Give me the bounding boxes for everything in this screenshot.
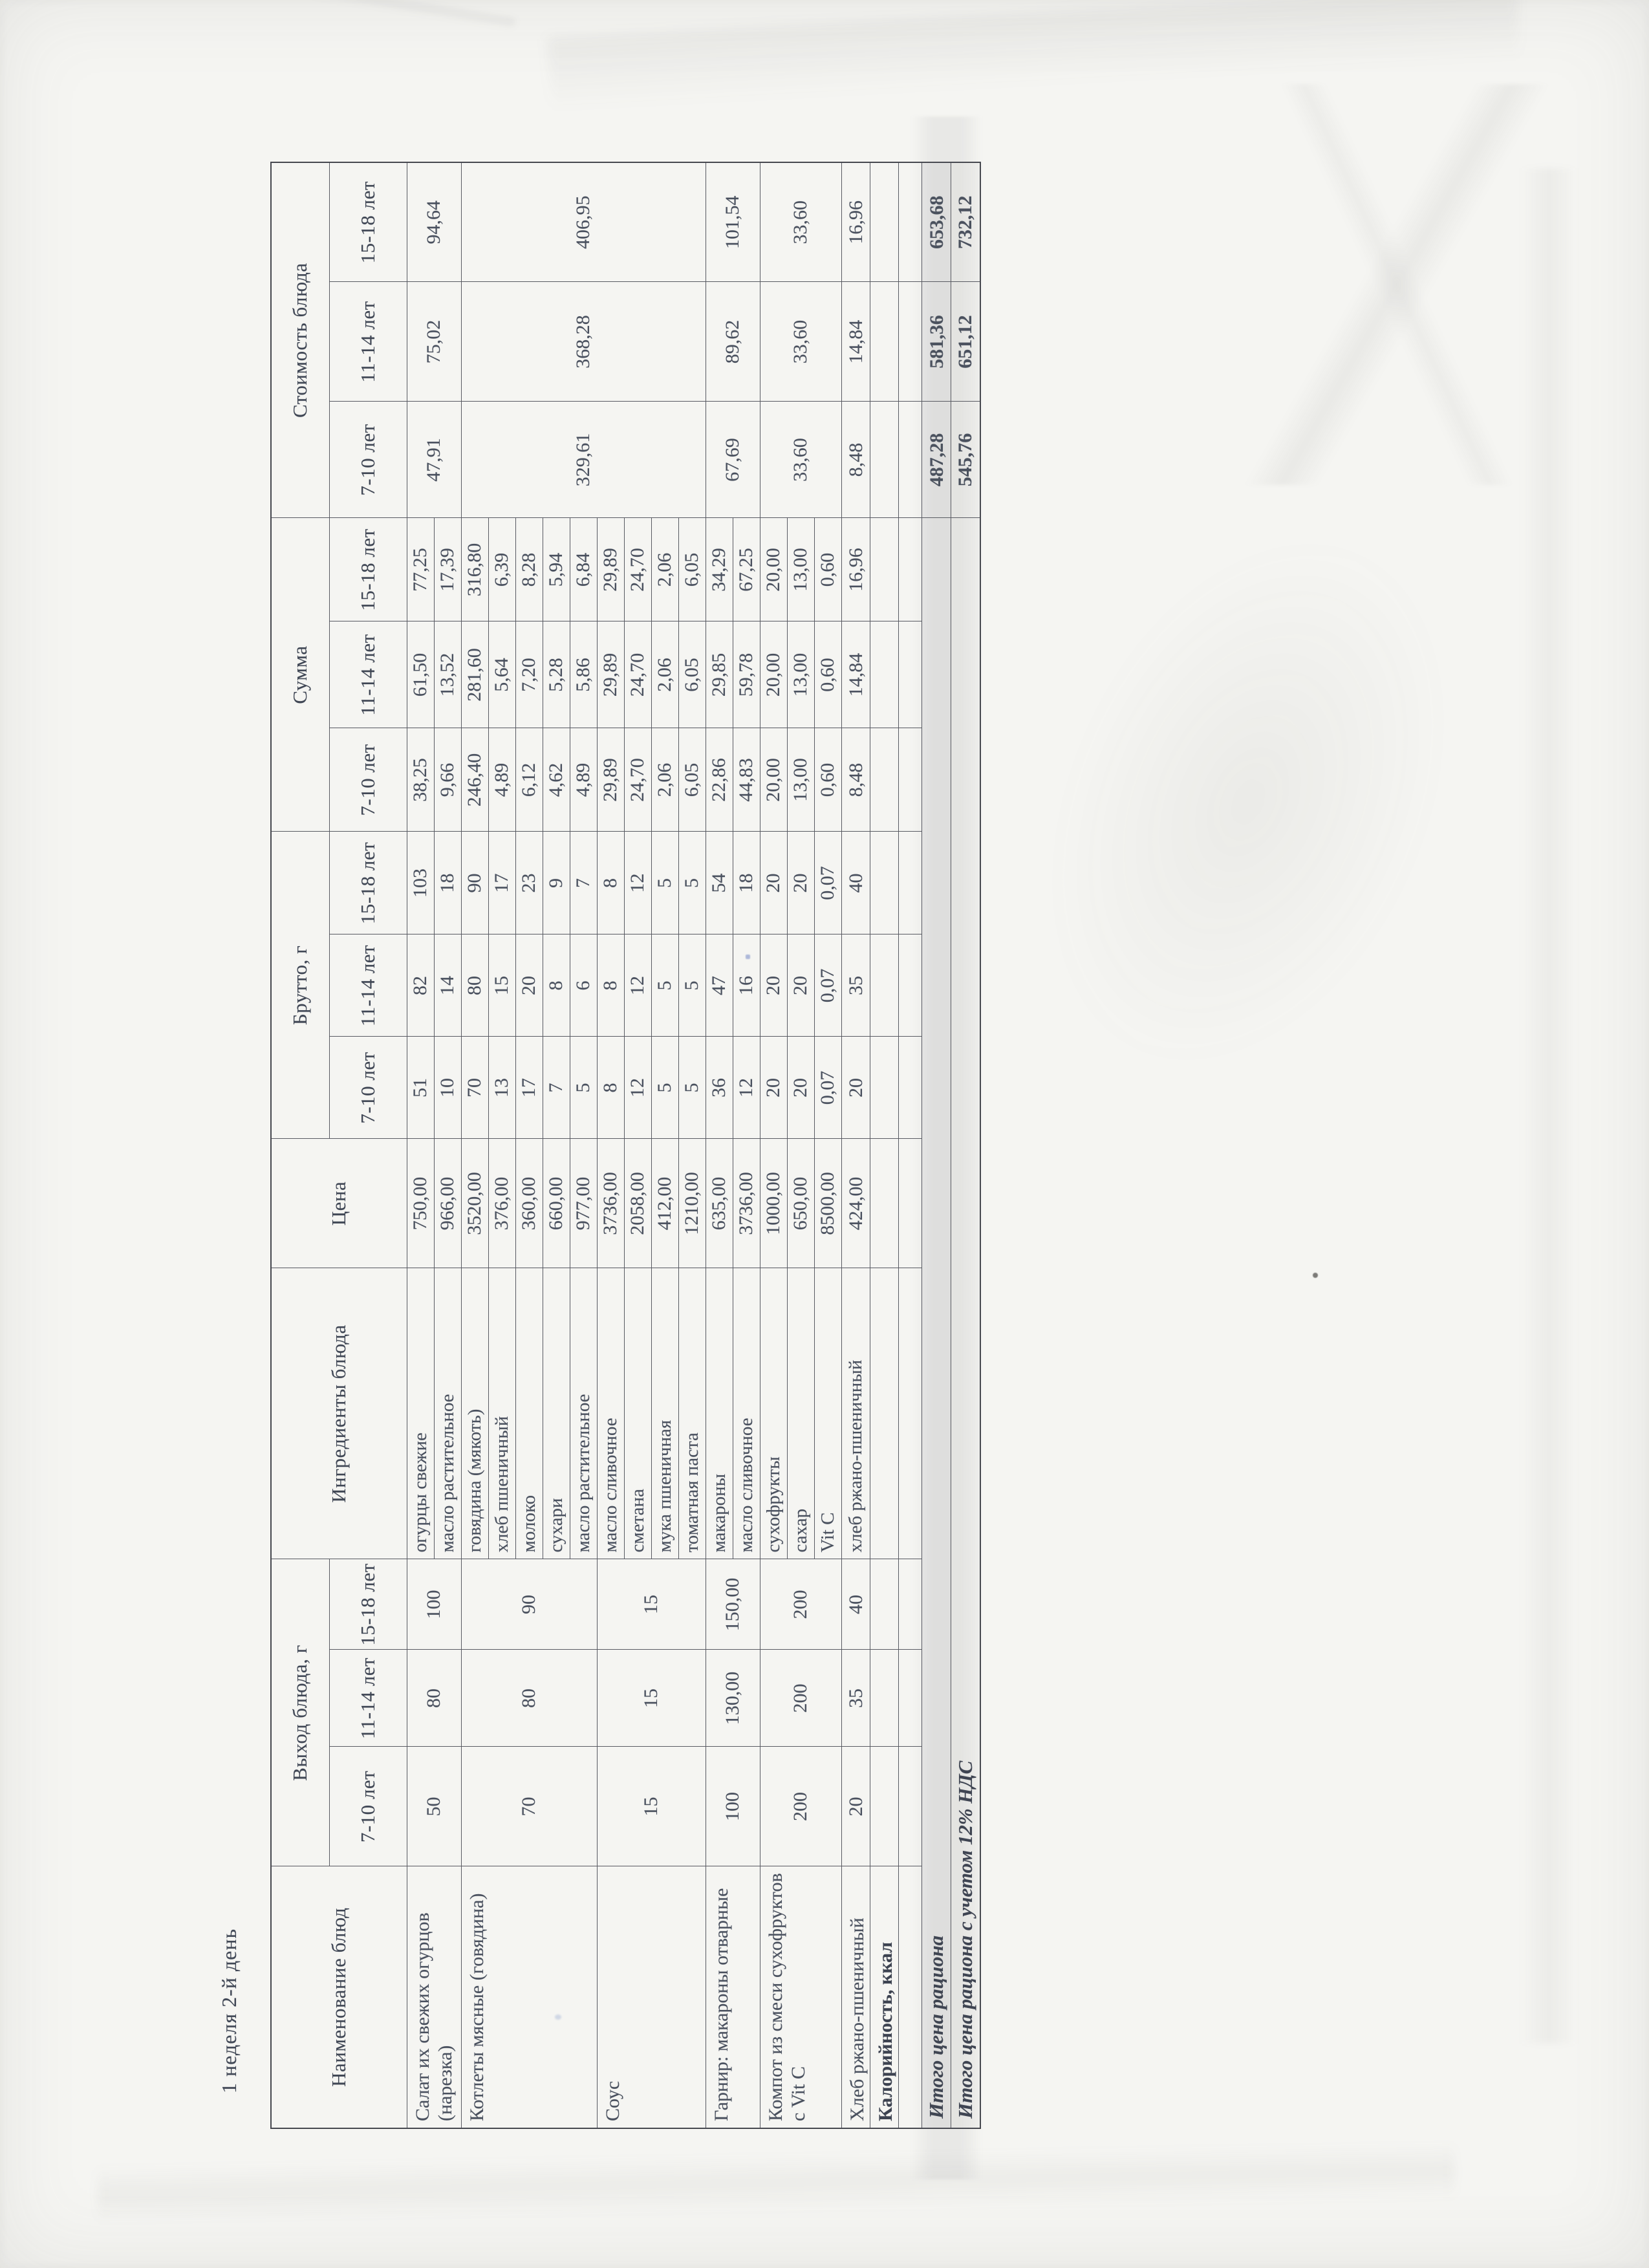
brutto-value: 5 [678,1037,706,1139]
brutto-value: 12 [624,934,651,1037]
col-header-age: 15-18 лет [329,162,407,282]
price-value: 376,00 [488,1139,515,1268]
price-value: 424,00 [841,1139,870,1268]
ingredient-name: макароны [706,1268,733,1559]
brutto-value: 17 [515,1037,543,1139]
yield-value [870,1650,898,1747]
brutto-value: 70 [461,1037,488,1139]
summa-value: 9,66 [434,728,461,832]
yield-value: 50 [407,1747,461,1866]
scanned-page: { "page": { "title": "1 неделя 2-й день"… [0,0,1649,2268]
yield-value: 15 [597,1650,706,1747]
price-value: 635,00 [706,1139,733,1268]
paper-crease [96,2142,1455,2224]
dish-name: Гарнир: макароны отварные [706,1866,760,2128]
ingredient-name: масло сливочное [733,1268,760,1559]
dish-cost-value: 368,28 [461,282,706,402]
brutto-value: 90 [461,832,488,934]
empty-cell [899,518,922,621]
total-value: 581,36 [922,282,951,402]
empty-cell [899,1559,922,1650]
col-header-age: 7-10 лет [329,402,407,518]
summa-value: 61,50 [407,621,434,728]
paper-crease [548,0,1522,135]
spacer-row [899,162,922,2128]
yield-value: 20 [841,1747,870,1866]
brutto-value: 20 [760,1037,787,1139]
dish-cost-value: 16,96 [841,162,870,282]
summa-value: 20,00 [760,518,787,621]
paper-crease [1196,84,1597,485]
dish-cost-value [870,162,898,282]
brutto-value [870,934,898,1037]
ingredient-row: Калорийность, ккал [870,162,898,2128]
brutto-value [870,1037,898,1139]
dish-name: Калорийность, ккал [870,1866,898,2128]
yield-value [870,1747,898,1866]
summa-value [870,518,898,621]
paper-crease [1520,168,1578,2044]
brutto-value: 47 [706,934,733,1037]
brutto-value: 5 [651,832,678,934]
brutto-value: 35 [841,934,870,1037]
dish-cost-value: 67,69 [706,402,760,518]
total-value: 487,28 [922,402,951,518]
ingredient-name: томатная паста [678,1268,706,1559]
brutto-value: 5 [570,1037,597,1139]
brutto-value: 20 [841,1037,870,1139]
summa-value: 2,06 [651,518,678,621]
brutto-value: 5 [651,934,678,1037]
yield-value: 130,00 [706,1650,760,1747]
brutto-value: 16 [733,934,760,1037]
brutto-value: 17 [488,832,515,934]
brutto-value: 12 [624,832,651,934]
price-value: 360,00 [515,1139,543,1268]
brutto-value: 10 [434,1037,461,1139]
brutto-value: 0,07 [814,832,841,934]
ingredient-name: мука пшеничная [651,1268,678,1559]
col-header-age: 11-14 лет [329,1650,407,1747]
summa-value: 13,00 [787,621,814,728]
ingredient-name: молоко [515,1268,543,1559]
brutto-value: 7 [543,1037,570,1139]
ingredient-row: Хлеб ржано-пшеничный203540хлеб ржано-пше… [841,162,870,2128]
dish-cost-value: 14,84 [841,282,870,402]
col-header-price: Цена [271,1139,407,1268]
brutto-value: 12 [733,1037,760,1139]
price-value: 412,00 [651,1139,678,1268]
summa-value: 59,78 [733,621,760,728]
ingredient-name: сахар [787,1268,814,1559]
yield-value: 15 [597,1747,706,1866]
dish-cost-value: 33,60 [760,282,841,402]
brutto-value: 15 [488,934,515,1037]
col-header-age: 7-10 лет [329,728,407,832]
ingredient-row: Салат их свежих огурцов (нарезка)5080100… [407,162,434,2128]
col-header-age: 11-14 лет [329,621,407,728]
ingredient-name: масло сливочное [597,1268,624,1559]
empty-cell [899,1747,922,1866]
price-value: 2058,00 [624,1139,651,1268]
empty-cell [899,162,922,282]
summa-value: 6,05 [678,621,706,728]
brutto-value: 0,07 [814,1037,841,1139]
brutto-value: 20 [787,1037,814,1139]
dish-cost-value: 75,02 [407,282,461,402]
empty-cell [899,1037,922,1139]
empty-cell [899,402,922,518]
total-value: 651,12 [951,282,980,402]
dish-cost-value: 406,95 [461,162,706,282]
ingredient-row: Компот из смеси сухофруктов с Vit C20020… [760,162,787,2128]
empty-cell [899,621,922,728]
header-row-groups: Наименование блюдВыход блюда, гИнгредиен… [271,162,329,2128]
summa-value: 77,25 [407,518,434,621]
price-value: 650,00 [787,1139,814,1268]
brutto-value: 82 [407,934,434,1037]
summa-value: 8,48 [841,728,870,832]
summa-value: 0,60 [814,621,841,728]
brutto-value: 18 [434,832,461,934]
summa-value: 44,83 [733,728,760,832]
ingredient-row: Гарнир: макароны отварные100130,00150,00… [706,162,733,2128]
yield-value: 40 [841,1559,870,1650]
summa-value: 17,39 [434,518,461,621]
menu-cost-table: Наименование блюдВыход блюда, гИнгредиен… [270,162,981,2129]
summa-value: 4,62 [543,728,570,832]
summa-value: 6,05 [678,728,706,832]
price-value [870,1139,898,1268]
summa-value: 29,89 [597,621,624,728]
summa-value: 8,28 [515,518,543,621]
summa-value: 29,85 [706,621,733,728]
total-label: Итого цена рациона с учетом 12% НДС [951,518,980,2128]
brutto-value: 20 [787,934,814,1037]
ingredient-name: сметана [624,1268,651,1559]
summa-value: 316,80 [461,518,488,621]
col-header-age: 11-14 лет [329,934,407,1037]
dish-name: Компот из смеси сухофруктов с Vit C [760,1866,841,2128]
summa-value: 38,25 [407,728,434,832]
ingredient-name: масло растительное [434,1268,461,1559]
summa-value: 0,60 [814,728,841,832]
brutto-value: 14 [434,934,461,1037]
yield-value: 150,00 [706,1559,760,1650]
summa-value: 5,64 [488,621,515,728]
document-title: 1 неделя 2-й день [217,1641,241,2093]
brutto-value: 9 [543,832,570,934]
dish-name: Соус [597,1866,706,2128]
total-label: Итого цена рациона [922,518,951,2128]
total-row: Итого цена рациона с учетом 12% НДС545,7… [951,162,980,2128]
summa-value: 20,00 [760,621,787,728]
summa-value: 13,00 [787,518,814,621]
col-header-summa: Сумма [271,518,329,832]
price-value: 660,00 [543,1139,570,1268]
price-value: 966,00 [434,1139,461,1268]
summa-value: 2,06 [651,621,678,728]
col-header-age: 15-18 лет [329,832,407,934]
summa-value: 246,40 [461,728,488,832]
summa-value: 5,94 [543,518,570,621]
col-header-dish: Наименование блюд [271,1866,407,2128]
summa-value: 6,39 [488,518,515,621]
summa-value: 6,84 [570,518,597,621]
summa-value: 0,60 [814,518,841,621]
brutto-value: 8 [597,1037,624,1139]
rotated-table-sheet: 1 неделя 2-й день Наименование блюдВыход… [270,163,976,2129]
price-value: 8500,00 [814,1139,841,1268]
brutto-value: 0,07 [814,934,841,1037]
brutto-value: 8 [597,934,624,1037]
price-value: 750,00 [407,1139,434,1268]
brutto-value: 12 [624,1037,651,1139]
summa-value: 7,20 [515,621,543,728]
summa-value: 2,06 [651,728,678,832]
summa-value: 4,89 [570,728,597,832]
summa-value: 4,89 [488,728,515,832]
brutto-value: 18 [733,832,760,934]
ingredient-name: Vit C [814,1268,841,1559]
brutto-value: 5 [678,934,706,1037]
col-header-cost: Стоимость блюда [271,162,329,518]
yield-value [870,1559,898,1650]
ingredient-row: Котлеты мясные (говядина)708090говядина … [461,162,488,2128]
brutto-value: 7 [570,832,597,934]
summa-value: 13,52 [434,621,461,728]
summa-value: 281,60 [461,621,488,728]
ingredient-name: сухари [543,1268,570,1559]
col-header-age: 11-14 лет [329,282,407,402]
dish-cost-value: 94,64 [407,162,461,282]
brutto-value: 20 [760,832,787,934]
summa-value: 6,05 [678,518,706,621]
yield-value: 200 [760,1747,841,1866]
summa-value: 24,70 [624,518,651,621]
total-value: 732,12 [951,162,980,282]
yield-value: 15 [597,1559,706,1650]
yield-value: 100 [407,1559,461,1650]
summa-value: 5,86 [570,621,597,728]
price-value: 3736,00 [597,1139,624,1268]
yield-value: 90 [461,1559,597,1650]
dish-cost-value: 33,60 [760,402,841,518]
brutto-value: 13 [488,1037,515,1139]
dish-name: Котлеты мясные (говядина) [461,1866,597,2128]
yield-value: 80 [461,1650,597,1747]
dish-name: Салат их свежих огурцов (нарезка) [407,1866,461,2128]
summa-value: 16,96 [841,518,870,621]
col-header-age: 15-18 лет [329,1559,407,1650]
brutto-value: 5 [651,1037,678,1139]
dish-cost-value [870,282,898,402]
summa-value: 22,86 [706,728,733,832]
col-header-age: 15-18 лет [329,518,407,621]
brutto-value: 20 [787,832,814,934]
price-value: 3520,00 [461,1139,488,1268]
summa-value: 5,28 [543,621,570,728]
price-value: 1210,00 [678,1139,706,1268]
empty-cell [899,1866,922,2128]
col-header-age: 7-10 лет [329,1747,407,1866]
summa-value: 13,00 [787,728,814,832]
summa-value: 34,29 [706,518,733,621]
dish-cost-value: 329,61 [461,402,706,518]
summa-value [870,621,898,728]
yield-value: 200 [760,1559,841,1650]
empty-cell [899,282,922,402]
ingredient-name: огурцы свежие [407,1268,434,1559]
brutto-value: 51 [407,1037,434,1139]
yield-value: 35 [841,1650,870,1747]
ingredient-name: говядина (мякоть) [461,1268,488,1559]
ink-speck [1313,1273,1318,1278]
brutto-value: 20 [515,934,543,1037]
ingredient-name: масло растительное [570,1268,597,1559]
price-value: 1000,00 [760,1139,787,1268]
brutto-value [870,832,898,934]
summa-value [870,728,898,832]
yield-value: 100 [706,1747,760,1866]
dish-cost-value: 101,54 [706,162,760,282]
dish-cost-value: 47,91 [407,402,461,518]
price-value: 977,00 [570,1139,597,1268]
ingredient-name: хлеб ржано-пшеничный [841,1268,870,1559]
dish-name: Хлеб ржано-пшеничный [841,1866,870,2128]
summa-value: 29,89 [597,518,624,621]
price-value: 3736,00 [733,1139,760,1268]
empty-cell [899,1139,922,1268]
empty-cell [899,1650,922,1747]
total-row: Итого цена рациона487,28581,36653,68 [922,162,951,2128]
brutto-value: 40 [841,832,870,934]
brutto-value: 54 [706,832,733,934]
dish-cost-value: 89,62 [706,282,760,402]
brutto-value: 20 [760,934,787,1037]
summa-value: 24,70 [624,728,651,832]
brutto-value: 36 [706,1037,733,1139]
dish-cost-value: 33,60 [760,162,841,282]
summa-value: 14,84 [841,621,870,728]
brutto-value: 8 [543,934,570,1037]
yield-value: 80 [407,1650,461,1747]
empty-cell [899,728,922,832]
ingredient-name: хлеб пшеничный [488,1268,515,1559]
yield-value: 70 [461,1747,597,1866]
ingredient-name: сухофрукты [760,1268,787,1559]
col-header-age: 7-10 лет [329,1037,407,1139]
summa-value: 24,70 [624,621,651,728]
empty-cell [899,934,922,1037]
brutto-value: 103 [407,832,434,934]
summa-value: 6,12 [515,728,543,832]
brutto-value: 8 [597,832,624,934]
paper-crease [28,0,515,29]
empty-cell [899,832,922,934]
total-value: 545,76 [951,402,980,518]
summa-value: 67,25 [733,518,760,621]
ingredient-name [870,1268,898,1559]
empty-cell [899,1268,922,1559]
col-header-yield: Выход блюда, г [271,1559,329,1866]
col-header-ingredients: Ингредиенты блюда [271,1268,407,1559]
yield-value: 200 [760,1650,841,1747]
summa-value: 20,00 [760,728,787,832]
summa-value: 29,89 [597,728,624,832]
col-header-brutto: Брутто, г [271,832,329,1139]
dish-cost-value: 8,48 [841,402,870,518]
brutto-value: 5 [678,832,706,934]
brutto-value: 23 [515,832,543,934]
dish-cost-value [870,402,898,518]
brutto-value: 6 [570,934,597,1037]
brutto-value: 80 [461,934,488,1037]
total-value: 653,68 [922,162,951,282]
